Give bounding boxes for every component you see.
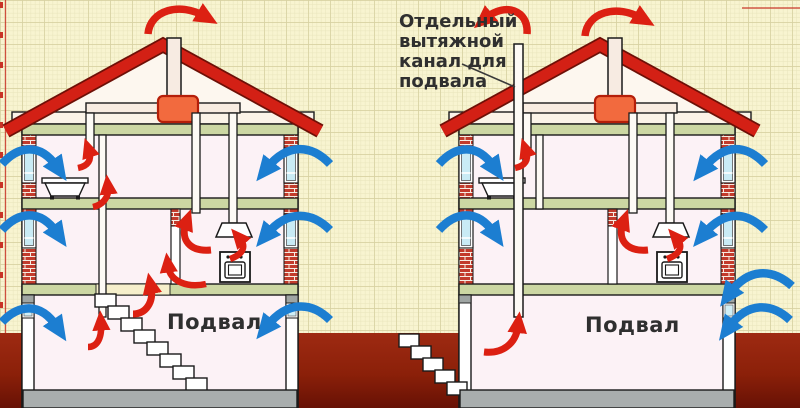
ceiling-slab — [459, 124, 735, 135]
separate-exhaust-pipe — [514, 44, 523, 317]
exhaust-duct-room — [192, 113, 200, 213]
exhaust-duct-kitchen — [666, 113, 674, 223]
exhaust-duct-wall — [536, 135, 543, 209]
right-wall — [284, 135, 298, 284]
window-glass — [25, 151, 34, 181]
left-wall — [22, 135, 36, 284]
window-glass — [462, 217, 471, 246]
exhaust-duct-bathroom — [523, 113, 531, 151]
exhaust-duct-bathroom — [86, 113, 94, 151]
exhaust-duct-to-basement — [99, 135, 106, 317]
left-wall — [459, 135, 473, 284]
basement-floor — [460, 390, 734, 408]
chimney — [608, 38, 622, 98]
callout-label: Отдельный вытяжной канал для подвала — [399, 12, 509, 92]
floor-slab — [22, 198, 298, 209]
window-glass — [25, 217, 34, 246]
window-glass — [462, 151, 471, 181]
cooker-hood — [216, 223, 252, 237]
wall-cap — [286, 295, 298, 303]
wall-cap — [22, 295, 34, 303]
wall-cap — [723, 295, 735, 303]
wall-cap — [459, 295, 471, 303]
right-wall — [721, 135, 735, 284]
basement-label-right: Подвал — [585, 313, 680, 337]
exhaust-duct-kitchen — [229, 113, 237, 223]
house-body — [459, 124, 735, 408]
ventilation-diagram: Отдельный вытяжной канал для подвала Под… — [0, 0, 800, 408]
chimney — [167, 38, 181, 98]
basement-floor — [23, 390, 297, 408]
vent-wall — [608, 209, 617, 284]
basement-label-left: Подвал — [167, 310, 262, 334]
basement-ceiling-slab — [459, 284, 735, 295]
exhaust-duct-room — [629, 113, 637, 213]
ceiling-slab — [22, 124, 298, 135]
cooker-hood — [653, 223, 689, 237]
floor-slab — [459, 198, 735, 209]
